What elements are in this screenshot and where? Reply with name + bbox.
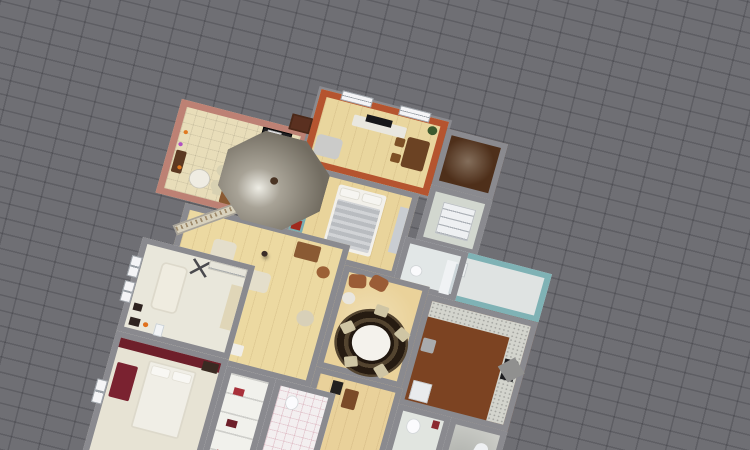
umbrella-pole (269, 176, 279, 185)
white-sofa[interactable] (149, 261, 189, 315)
pillow (171, 370, 192, 384)
picture-frame (128, 317, 140, 327)
linens (233, 387, 245, 397)
armchair[interactable] (312, 133, 343, 160)
wooden-desk[interactable] (293, 241, 321, 263)
ironing-board[interactable] (458, 441, 491, 450)
dining-chair[interactable] (394, 137, 406, 148)
dining-chair[interactable] (390, 152, 402, 163)
side-table[interactable] (341, 291, 357, 306)
ottoman[interactable] (294, 308, 315, 328)
round-chair[interactable] (315, 265, 331, 280)
garden-bench[interactable] (171, 149, 187, 173)
orange-lamp (142, 322, 148, 328)
room-terrace[interactable] (156, 99, 310, 226)
toilet[interactable] (404, 417, 422, 435)
wall-shelf[interactable] (208, 260, 248, 278)
toilet[interactable] (283, 394, 300, 411)
dining-chair[interactable] (344, 356, 358, 367)
wall-sconce (356, 106, 361, 111)
picture-frame (431, 420, 440, 430)
leather-armchair[interactable] (368, 273, 391, 293)
dresser[interactable] (435, 202, 476, 242)
flower-pot (183, 130, 188, 135)
toilet[interactable] (409, 264, 424, 278)
refrigerator[interactable] (408, 380, 432, 404)
picture-frame (133, 303, 143, 312)
kitchen-cart[interactable] (420, 337, 436, 354)
wall-sconce (385, 113, 390, 118)
potted-plant[interactable] (427, 125, 439, 136)
water-cooler[interactable] (153, 323, 165, 337)
console-cabinet[interactable] (340, 388, 359, 410)
3d-view-canvas[interactable] (0, 0, 750, 450)
rug (108, 362, 138, 402)
terrace-round-table[interactable] (187, 167, 213, 191)
flower-pot (178, 142, 183, 147)
pillow (339, 187, 361, 201)
linens (226, 419, 238, 429)
leather-armchair[interactable] (348, 274, 366, 289)
pillow (361, 193, 383, 207)
double-bed[interactable] (130, 360, 197, 439)
person-figure[interactable] (261, 250, 268, 257)
pillow (150, 365, 171, 379)
